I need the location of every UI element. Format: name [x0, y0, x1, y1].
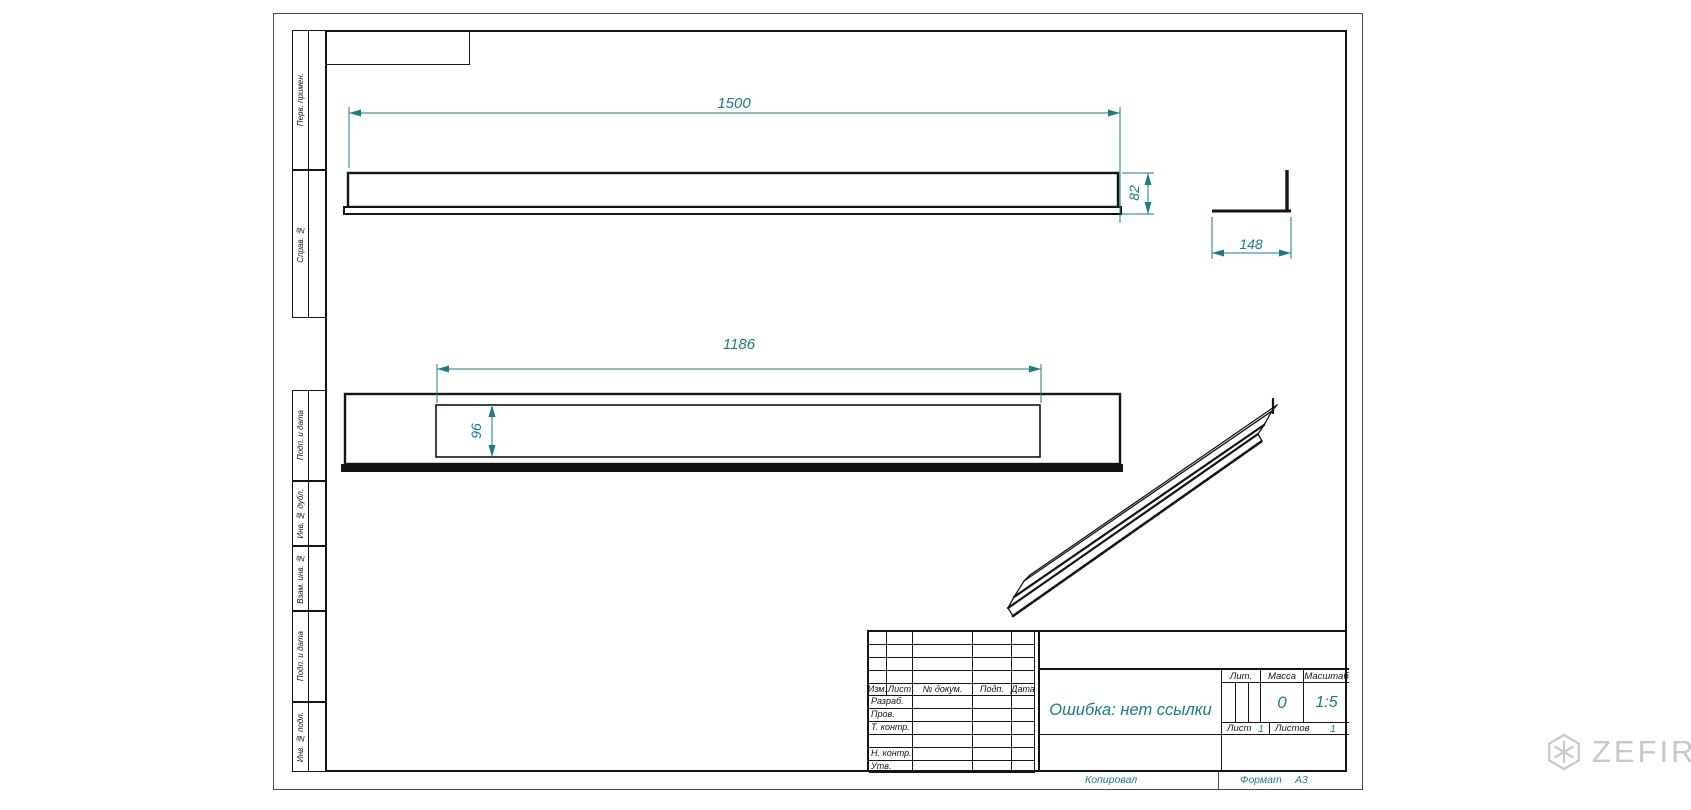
sign-cell [913, 748, 973, 761]
margin-label: Инв. № подл. [296, 712, 305, 762]
sign-cell [1012, 761, 1035, 773]
sign-cell [973, 735, 1012, 748]
revision-cell [869, 632, 887, 645]
lit-divider [1235, 683, 1236, 723]
sheet-value: 1 [1258, 723, 1264, 735]
margin-signature-cell [309, 703, 325, 771]
margin-label: Инв. № дубл. [296, 489, 305, 539]
sign-cell [913, 696, 973, 709]
scale-header: Масштаб [1304, 670, 1349, 683]
margin-box: Инв. № дубл. [292, 481, 326, 546]
margin-signature-cell [309, 612, 325, 701]
margin-signature-cell [309, 31, 325, 169]
margin-signature-cell [309, 171, 325, 317]
title-block-right: Ошибка: нет ссылки Лит. Масса Масштаб 0 … [1038, 632, 1349, 770]
margin-label: Подп. и дата [296, 410, 305, 460]
margin-label: Взам. инв. № [296, 554, 305, 604]
revision-cell [887, 658, 913, 671]
row-label-prov: Пров. [869, 709, 913, 722]
doc-title: Ошибка: нет ссылки [1049, 685, 1211, 720]
margin-label: Перв. примен. [296, 73, 305, 126]
margin-label-cell: Подп. и дата [293, 612, 309, 701]
margin-label-cell: Подп. и дата [293, 391, 309, 480]
col-header-list: Лист [887, 684, 913, 696]
footer-divider [1218, 772, 1219, 790]
corner-designation-box [325, 30, 470, 65]
revision-cell [869, 671, 887, 684]
scale-value: 1:5 [1304, 683, 1349, 723]
margin-label: Подп. и дата [296, 631, 305, 681]
sheet-cell: Лист 1 [1222, 723, 1270, 735]
revision-cell [887, 671, 913, 684]
col-header-doc: № докум. [913, 684, 973, 696]
margin-box: Взам. инв. № [292, 546, 326, 611]
margin-label-cell: Справ. № [293, 171, 309, 317]
sheets-value: 1 [1330, 723, 1344, 735]
margin-box: Перв. примен. [292, 30, 326, 170]
format-value: А3 [1295, 774, 1308, 786]
margin-signature-cell [309, 482, 325, 545]
revision-cell [973, 671, 1012, 684]
sheets-cell: Листов 1 [1270, 723, 1349, 735]
sheets-label: Листов [1275, 723, 1310, 734]
revision-cell [887, 632, 913, 645]
revision-cell [913, 632, 973, 645]
revision-cell [973, 658, 1012, 671]
designation-box [1040, 632, 1349, 670]
revision-cell [973, 645, 1012, 658]
revision-cell [869, 645, 887, 658]
revision-cell [913, 645, 973, 658]
col-header-izm: Изм. [869, 684, 887, 696]
row-label-nkontr: Н. контр. [869, 748, 913, 761]
margin-label-cell: Взам. инв. № [293, 547, 309, 610]
sign-cell [1012, 696, 1035, 709]
sign-cell [1012, 735, 1035, 748]
material-box [1040, 735, 1222, 770]
margin-box: Инв. № подл. [292, 702, 326, 772]
sign-cell [1012, 748, 1035, 761]
sign-cell [973, 761, 1012, 773]
margin-box: Подп. и дата [292, 611, 326, 702]
organization-box [1222, 735, 1349, 770]
margin-signature-cell [309, 391, 325, 480]
title-block-revision-table: Изм. Лист № докум. Подп. Дата Разраб. Пр… [869, 632, 1038, 770]
row-label-razrab: Разраб. [869, 696, 913, 709]
margin-box: Подп. и дата [292, 390, 326, 481]
sign-cell [1012, 709, 1035, 722]
sign-cell [973, 722, 1012, 735]
margin-label: Справ. № [296, 226, 305, 263]
sign-cell [973, 709, 1012, 722]
mass-value: 0 [1261, 683, 1304, 723]
margin-label-cell: Перв. примен. [293, 31, 309, 169]
revision-cell [913, 671, 973, 684]
sign-cell [913, 761, 973, 773]
revision-cell [1012, 632, 1035, 645]
mass-header: Масса [1261, 670, 1304, 683]
sign-cell [913, 722, 973, 735]
watermark-text: ZEFIRE [1592, 734, 1691, 770]
row-label-blank [869, 735, 913, 748]
row-label-tkontr: Т. контр. [869, 722, 913, 735]
col-header-podp: Подп. [973, 684, 1012, 696]
sheet-label: Лист [1227, 723, 1251, 734]
title-block: Изм. Лист № докум. Подп. Дата Разраб. Пр… [867, 630, 1347, 772]
doc-title-box: Ошибка: нет ссылки [1040, 670, 1222, 735]
revision-cell [1012, 671, 1035, 684]
zefire-logo-icon [1545, 733, 1583, 771]
revision-cell [973, 632, 1012, 645]
sign-cell [913, 709, 973, 722]
sign-cell [973, 748, 1012, 761]
lit-value-box [1222, 683, 1261, 723]
revision-cell [887, 645, 913, 658]
sign-cell [1012, 722, 1035, 735]
revision-cell [869, 658, 887, 671]
format-label: Формат [1240, 774, 1282, 786]
sign-cell [913, 735, 973, 748]
margin-label-cell: Инв. № дубл. [293, 482, 309, 545]
margin-signature-cell [309, 547, 325, 610]
revision-cell [1012, 658, 1035, 671]
revision-cell [913, 658, 973, 671]
watermark: ZEFIRE [1545, 733, 1691, 771]
row-label-utv: Утв. [869, 761, 913, 773]
margin-label-cell: Инв. № подл. [293, 703, 309, 771]
margin-box: Справ. № [292, 170, 326, 318]
drawing-canvas: Перв. примен. Справ. № Подп. и дата Инв.… [0, 0, 1691, 810]
sign-cell [973, 696, 1012, 709]
revision-cell [1012, 645, 1035, 658]
lit-divider [1248, 683, 1249, 723]
lit-header: Лит. [1222, 670, 1261, 683]
copied-label: Копировал [1085, 774, 1137, 786]
col-header-data: Дата [1012, 684, 1035, 696]
